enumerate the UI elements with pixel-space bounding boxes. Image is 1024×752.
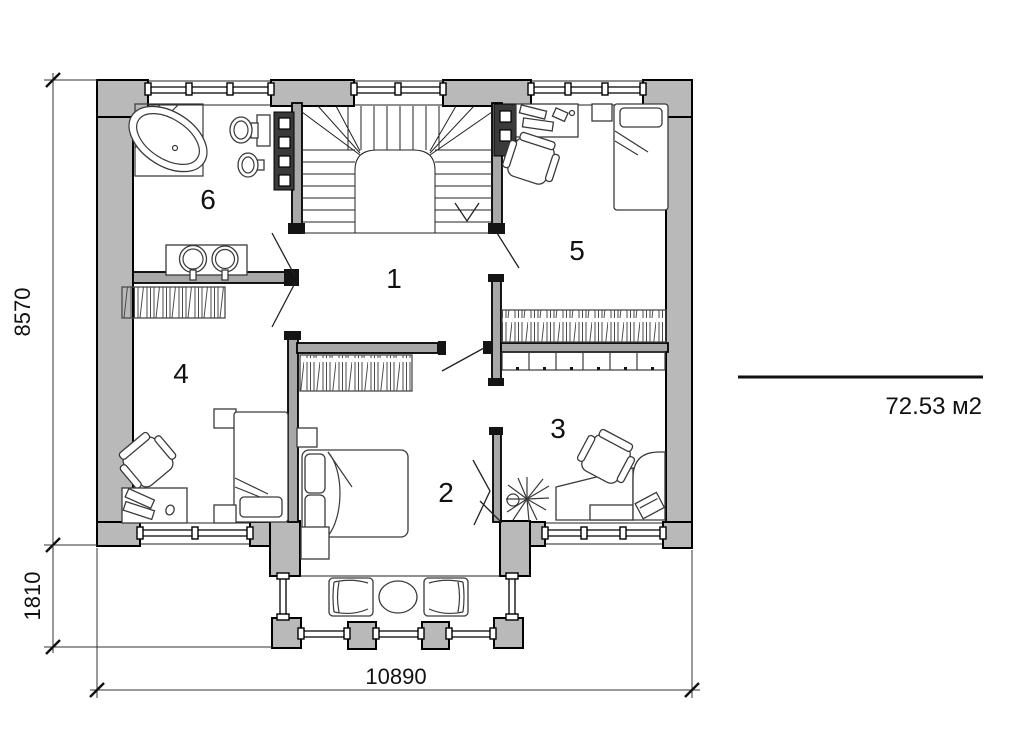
room-label-6: 6 bbox=[200, 184, 216, 215]
dimension-bottom-width: 10890 bbox=[90, 548, 700, 698]
room4-furniture bbox=[112, 409, 288, 523]
shaft-left bbox=[274, 112, 294, 190]
door-room5 bbox=[497, 233, 519, 268]
balcony-rail-right bbox=[506, 573, 518, 620]
plant bbox=[506, 477, 549, 521]
dimension-left-height: 8570 bbox=[10, 73, 97, 552]
door-bathroom bbox=[272, 233, 295, 276]
area-annotation: 72.53 м2 bbox=[738, 377, 983, 420]
area-value: 72.53 м2 bbox=[885, 393, 982, 420]
room-label-3: 3 bbox=[550, 413, 566, 444]
balcony-rail-bottom bbox=[298, 628, 496, 639]
balcony-rail-left bbox=[277, 573, 289, 620]
nightstand-room4 bbox=[214, 505, 236, 523]
staircase bbox=[302, 106, 492, 233]
bottom-wall-right bbox=[663, 522, 692, 548]
window-room3 bbox=[542, 523, 666, 544]
wardrobe-room4 bbox=[122, 287, 225, 318]
stair-treads-top bbox=[348, 106, 439, 150]
room-label-5: 5 bbox=[569, 235, 585, 266]
balcony-pier-br bbox=[494, 618, 523, 648]
wall-hall-room2 bbox=[297, 343, 438, 353]
door-room2 bbox=[442, 348, 484, 371]
balcony bbox=[272, 573, 523, 649]
room-label-2: 2 bbox=[438, 477, 454, 508]
stair-well-railing bbox=[355, 150, 435, 233]
door-room4 bbox=[272, 283, 295, 327]
nightstand-room2 bbox=[297, 428, 317, 447]
bathroom-fixtures bbox=[117, 93, 270, 280]
room3-furniture bbox=[506, 425, 665, 521]
room2-furniture bbox=[297, 428, 408, 559]
floor-plan-drawing: 1 2 3 4 5 6 8570 1810 10890 72.53 м2 bbox=[0, 0, 1024, 752]
wardrobe-room2 bbox=[300, 355, 412, 391]
nightstand-room5 bbox=[592, 104, 612, 121]
shelf-room3 bbox=[502, 352, 665, 370]
balcony-right-junction bbox=[500, 521, 530, 576]
toilet bbox=[230, 115, 270, 146]
stair-treads-right bbox=[435, 150, 492, 222]
balcony-left-junction bbox=[270, 521, 300, 576]
stair-winders bbox=[302, 106, 492, 155]
door-room3 bbox=[473, 460, 490, 525]
bed-room4 bbox=[234, 412, 288, 522]
bed-room5 bbox=[614, 104, 668, 210]
wall-room5-room3 bbox=[501, 343, 668, 352]
stool-room4 bbox=[214, 409, 236, 428]
wall-room2-room3 bbox=[493, 430, 501, 522]
dim-balcony-depth-text: 1810 bbox=[20, 572, 45, 621]
double-bed-room2 bbox=[302, 450, 408, 537]
right-wall bbox=[666, 80, 692, 548]
window-stairs bbox=[351, 81, 446, 105]
dim-bottom-width-text: 10890 bbox=[365, 664, 426, 689]
bottom-wall-left bbox=[97, 522, 140, 546]
top-pier-right bbox=[443, 80, 531, 106]
room-label-1: 1 bbox=[386, 263, 402, 294]
floor-plan-page: 1 2 3 4 5 6 8570 1810 10890 72.53 м2 bbox=[0, 0, 1024, 752]
top-pier-left bbox=[271, 80, 354, 106]
balcony-table bbox=[379, 581, 417, 613]
balcony-armchair-left bbox=[329, 578, 373, 616]
bidet bbox=[238, 153, 264, 177]
dimension-balcony-depth: 1810 bbox=[20, 545, 272, 654]
balcony-pier-b1 bbox=[348, 622, 376, 649]
wardrobe-room5 bbox=[502, 310, 666, 342]
room5-furniture bbox=[500, 104, 668, 210]
wall-stub-hall bbox=[492, 277, 501, 383]
balcony-armchair-right bbox=[424, 578, 468, 616]
double-sink bbox=[166, 245, 247, 280]
stair-direction-arrow bbox=[455, 203, 479, 221]
balcony-pier-bl bbox=[272, 618, 301, 648]
dim-left-height-text: 8570 bbox=[10, 288, 35, 337]
balcony-pier-b2 bbox=[422, 622, 449, 649]
room-label-4: 4 bbox=[173, 358, 189, 389]
top-windows bbox=[145, 81, 646, 105]
window-room4 bbox=[137, 523, 253, 544]
window-bathroom bbox=[145, 81, 274, 105]
window-bedroom5 bbox=[528, 81, 646, 105]
bench-room2 bbox=[301, 527, 329, 559]
